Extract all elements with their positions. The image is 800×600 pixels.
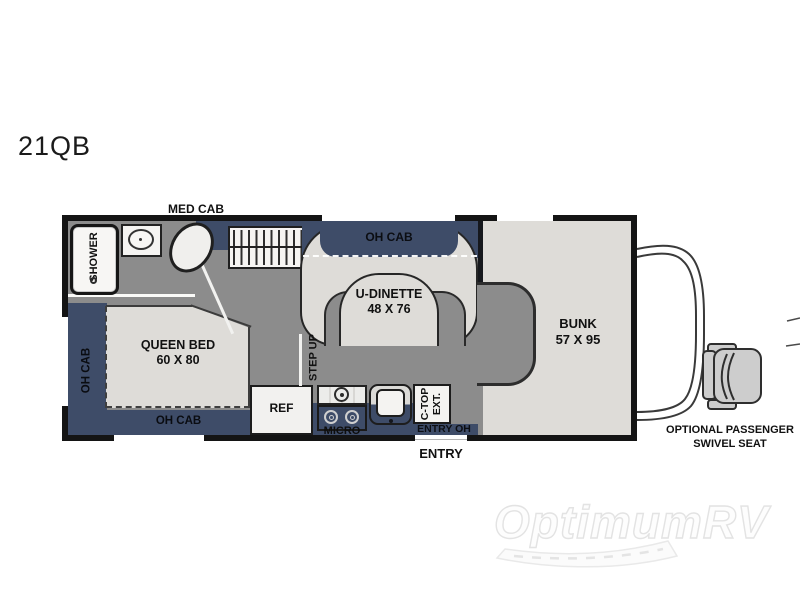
bunk-wall (478, 221, 483, 284)
oh-cab-left-label: OH CAB (81, 341, 94, 401)
u-dinette-label-line1: U-DINETTE (339, 287, 439, 302)
queen-bed (106, 306, 191, 328)
queen-bed-label-line1: QUEEN BED (118, 338, 238, 353)
queen-bed-edge-bottom-dashed (106, 406, 250, 408)
cropped-object-lines (786, 318, 800, 346)
ctop-ext-label-line2: EXT. (432, 381, 444, 427)
oh-cab-dinette-label: OH CAB (320, 230, 458, 244)
optional-seat-label-line2: SWIVEL SEAT (650, 437, 800, 451)
window-left-bedroom (62, 317, 68, 406)
floorplan-page: OptimumRV 21QB MED CAB ENTRY OPTIONAL PA… (0, 0, 800, 600)
watermark-text: OptimumRV (494, 496, 771, 548)
entry-door-opening (415, 435, 467, 441)
optional-seat-label-line1: OPTIONAL PASSENGER (650, 423, 800, 437)
window-top-bunk (497, 215, 553, 221)
window-bottom-bedroom (114, 435, 204, 441)
step-up-label: STEP UP (308, 328, 321, 388)
bunk-label-line2: 57 X 95 (523, 332, 633, 348)
u-dinette-label: U-DINETTE 48 X 76 (339, 287, 439, 317)
shower-drain-icon (90, 277, 97, 284)
window-top-dinette (322, 215, 455, 221)
cab-outline (637, 246, 704, 420)
ctop-ext-label: C-TOP EXT. (420, 381, 444, 427)
step-edge (299, 334, 302, 386)
swivel-seat (703, 344, 761, 409)
queen-bed-label-line2: 60 X 80 (118, 353, 238, 368)
queen-bed-label: QUEEN BED 60 X 80 (118, 338, 238, 368)
entry-door-line (415, 439, 467, 440)
oh-cab-dashed-edge (303, 255, 477, 257)
oh-cab-bottom-label: OH CAB (107, 415, 250, 429)
micro-label: MICRO (314, 425, 370, 438)
wardrobe (228, 226, 310, 269)
kitchen-sink-basin (376, 389, 405, 417)
u-dinette-label-line2: 48 X 76 (339, 302, 439, 317)
entry-oh-label: ENTRY OH (410, 424, 478, 435)
ref-label: REF (250, 401, 313, 415)
optional-seat-label: OPTIONAL PASSENGER SWIVEL SEAT (650, 423, 800, 452)
ctop-ext-label-line1: C-TOP (420, 381, 432, 427)
watermark-logo: OptimumRV (494, 496, 771, 567)
bunk-label-line1: BUNK (523, 316, 633, 332)
queen-bed-edge-top (106, 305, 192, 307)
bathroom-sink-drain (139, 238, 142, 241)
stove-burner-right-center (350, 415, 355, 420)
stove-burner-left-center (329, 415, 334, 420)
kitchen-sink-drain (389, 419, 393, 423)
stove-cooktop-burner-center (340, 393, 344, 397)
wardrobe-rod (230, 246, 308, 249)
queen-bed-edge-left-dashed (105, 306, 107, 408)
entry-label: ENTRY (386, 446, 496, 462)
model-label: 21QB (18, 131, 91, 162)
bunk-label: BUNK 57 X 95 (523, 316, 633, 347)
